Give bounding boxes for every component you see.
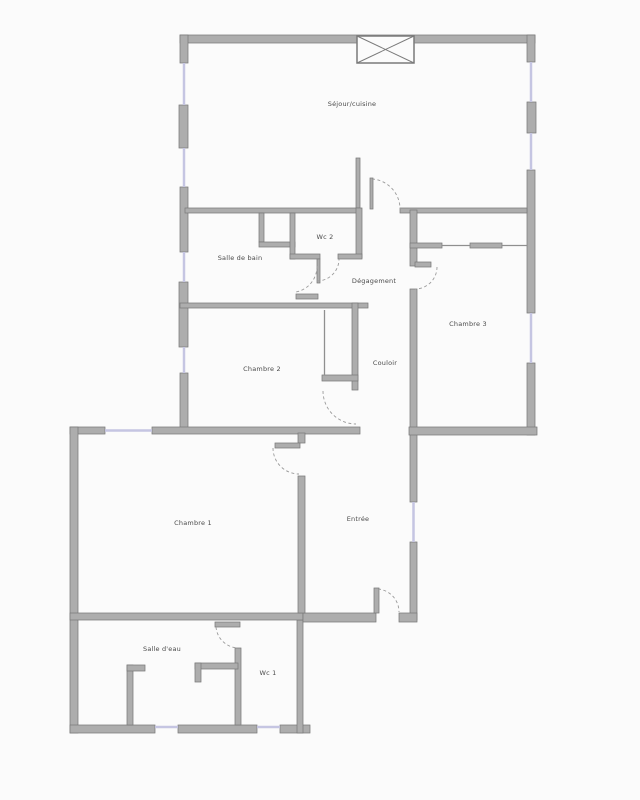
- room-label-entree: Entrée: [347, 515, 370, 523]
- door-arcs: [216, 179, 437, 648]
- door-leaves: [215, 178, 431, 627]
- room-label-chambre-1: Chambre 1: [174, 519, 212, 527]
- room-label-sejour-cuisine: Séjour/cuisine: [328, 100, 377, 108]
- room-label-wc-1: Wc 1: [259, 669, 276, 677]
- room-label-chambre-3: Chambre 3: [449, 320, 487, 328]
- shaft-symbol: [357, 36, 414, 63]
- room-label-chambre-2: Chambre 2: [243, 365, 281, 373]
- room-label-couloir: Couloir: [373, 359, 397, 367]
- room-label-salle-d-eau: Salle d'eau: [143, 645, 181, 653]
- room-label-wc-2: Wc 2: [316, 233, 333, 241]
- room-label-degagement: Dégagement: [352, 277, 396, 285]
- walls: [70, 35, 537, 733]
- floorplan: Séjour/cuisine Salle de bain Wc 2 Dégage…: [0, 0, 640, 800]
- room-label-salle-de-bain: Salle de bain: [218, 254, 263, 262]
- windows: [105, 62, 531, 727]
- floorplan-drawing: [0, 0, 640, 800]
